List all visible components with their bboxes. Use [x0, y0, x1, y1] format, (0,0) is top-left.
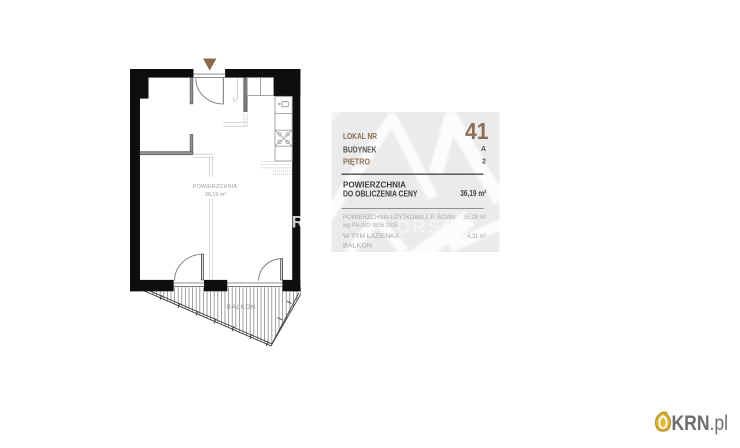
- svg-text:36,19 m²: 36,19 m²: [205, 192, 226, 198]
- svg-text:35,28 m²: 35,28 m²: [463, 214, 487, 221]
- svg-text:41: 41: [465, 118, 489, 144]
- svg-text:2: 2: [482, 159, 486, 166]
- svg-text:LOKAL NR: LOKAL NR: [343, 132, 377, 141]
- svg-text:W TYM ŁAZIENKA: W TYM ŁAZIENKA: [343, 233, 399, 240]
- svg-text:A: A: [481, 146, 486, 153]
- svg-text:wg PN-ISO 9836:2015: wg PN-ISO 9836:2015: [342, 223, 399, 229]
- svg-text:BALKON: BALKON: [343, 242, 372, 249]
- svg-text:PIĘTRO: PIĘTRO: [343, 158, 370, 167]
- svg-text:R: R: [292, 212, 304, 231]
- svg-text:4,31 m²: 4,31 m²: [467, 233, 487, 240]
- svg-text:DO OBLICZENIA CENY: DO OBLICZENIA CENY: [343, 189, 418, 199]
- svg-text:KRN.pl: KRN.pl: [672, 411, 729, 435]
- svg-text:POWIERZCHNIA UŻYTKOWA Z P. ŚCI: POWIERZCHNIA UŻYTKOWA Z P. ŚCIAN: [343, 212, 455, 221]
- svg-text:BALKON: BALKON: [227, 305, 256, 311]
- svg-text:BUDYNEK: BUDYNEK: [343, 145, 377, 154]
- svg-text:POWIERZCHNIA: POWIERZCHNIA: [193, 184, 238, 190]
- svg-text:36,19 m²: 36,19 m²: [460, 189, 486, 198]
